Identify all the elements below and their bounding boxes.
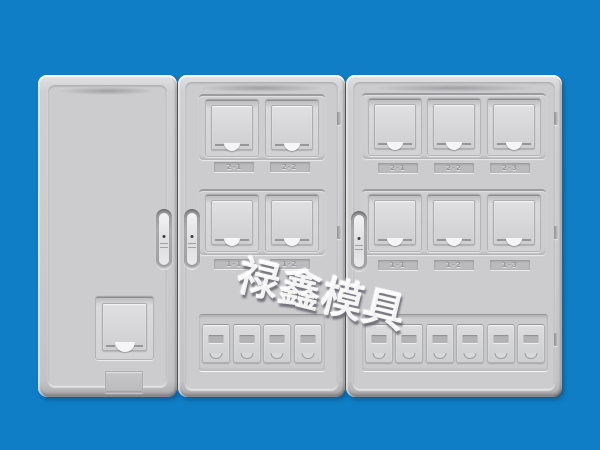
meter-label-plate: 1-3 — [490, 260, 530, 270]
flap-latch-left — [437, 143, 446, 145]
flap-latch-right — [522, 143, 531, 145]
breaker-slot — [493, 335, 508, 343]
hinge-tab — [337, 226, 341, 239]
meter-window — [265, 100, 319, 157]
breaker-latch — [271, 353, 284, 359]
label-row: 1-1 1-2 — [199, 258, 325, 269]
flap-notch — [506, 238, 522, 246]
meter-window-flap — [493, 104, 535, 149]
breaker-window — [202, 324, 230, 363]
flap-latch-left — [378, 239, 387, 241]
left-door-face — [48, 85, 167, 387]
flap-notch — [446, 238, 462, 246]
flap-notch — [224, 143, 240, 151]
meter-label-plate: 2-3 — [490, 163, 530, 173]
flap-latch-right — [403, 239, 412, 241]
card-reader-window — [95, 297, 154, 360]
breaker-latch — [302, 353, 315, 359]
breaker-slot — [270, 335, 285, 343]
meter-window-group-row1 — [362, 189, 546, 255]
meter-window-group-row1 — [199, 189, 325, 255]
flap-latch-right — [403, 143, 412, 145]
meter-box-product-image: 2-1 2-2 1-1 1-2 — [0, 0, 600, 450]
breaker-slot — [463, 335, 478, 343]
meter-window-group-row2 — [362, 93, 546, 159]
flap-latch-left — [275, 239, 284, 241]
breaker-window — [294, 324, 322, 363]
meter-window — [427, 195, 481, 252]
breaker-window — [487, 324, 515, 363]
meter-label-plate: 1-1 — [378, 260, 418, 270]
breaker-slot — [208, 335, 223, 343]
handle-marking — [188, 247, 196, 248]
flap-latch-left — [106, 345, 115, 347]
hinge-tab — [554, 226, 558, 239]
breaker-latch — [209, 353, 222, 359]
breaker-row — [362, 314, 548, 372]
breaker-latch — [464, 353, 477, 359]
flap-latch-right — [522, 239, 531, 241]
breaker-latch — [240, 353, 253, 359]
flap-notch — [115, 342, 135, 352]
flap-latch-left — [275, 144, 284, 146]
flap-latch-left — [378, 143, 387, 145]
breaker-row — [199, 314, 325, 372]
breaker-window — [426, 324, 454, 363]
breaker-window — [395, 324, 423, 363]
label-row: 2-1 2-2 — [199, 161, 325, 172]
meter-window-flap — [374, 200, 416, 245]
meter-window-flap — [211, 200, 253, 245]
lock-dot-icon — [191, 235, 194, 238]
meter-label-plate: 2-1 — [378, 163, 418, 173]
breaker-slot — [432, 335, 447, 343]
breaker-latch — [433, 353, 446, 359]
right-door-panel: 2-1 2-2 2-3 1-1 1-2 1-3 — [346, 75, 562, 397]
handle-recess — [159, 213, 169, 265]
meter-window-flap — [211, 105, 253, 150]
handle-marking — [160, 247, 168, 248]
flap-latch-right — [462, 239, 471, 241]
breaker-window — [517, 324, 545, 363]
flap-latch-left — [437, 239, 446, 241]
flap-latch-right — [300, 239, 309, 241]
flap-notch — [284, 238, 300, 246]
hinge-tab — [554, 112, 558, 125]
meter-window — [487, 99, 541, 156]
meter-window-flap — [374, 104, 416, 149]
breaker-slot — [301, 335, 316, 343]
flap-notch — [506, 142, 522, 150]
meter-window — [205, 100, 259, 157]
meter-window — [368, 195, 422, 252]
left-door-handle — [156, 209, 172, 269]
flap-latch-right — [300, 144, 309, 146]
right-door-handle — [351, 211, 367, 271]
flap-latch-left — [215, 144, 224, 146]
handle-marking — [355, 249, 363, 250]
meter-label-plate: 2-2 — [434, 163, 474, 173]
handle-marking — [160, 243, 168, 244]
meter-window-flap — [493, 200, 535, 245]
meter-window-flap — [271, 105, 313, 150]
meter-window-group-row2 — [199, 94, 325, 160]
label-row: 2-1 2-2 2-3 — [362, 162, 546, 173]
lock-dot-icon — [358, 237, 361, 240]
handle-marking — [355, 245, 363, 246]
breaker-slot — [371, 335, 386, 343]
label-row: 1-1 1-2 1-3 — [362, 259, 546, 270]
meter-window-flap — [271, 200, 313, 245]
nameplate — [105, 371, 143, 393]
meter-window — [487, 195, 541, 252]
meter-label-plate: 2-2 — [270, 162, 310, 172]
flap-latch-left — [497, 239, 506, 241]
flap-latch-right — [240, 239, 249, 241]
meter-window-flap — [433, 200, 475, 245]
left-door-panel — [38, 75, 177, 397]
card-window-flap — [102, 303, 147, 351]
flap-latch-left — [215, 239, 224, 241]
meter-label-plate: 2-1 — [214, 162, 254, 172]
breaker-latch — [372, 353, 385, 359]
breaker-window — [263, 324, 291, 363]
breaker-slot — [524, 335, 539, 343]
flap-notch — [284, 143, 300, 151]
handle-recess — [354, 215, 364, 267]
meter-window — [205, 195, 259, 252]
handle-marking — [188, 243, 196, 244]
breaker-latch — [403, 353, 416, 359]
breaker-slot — [402, 335, 417, 343]
meter-window — [265, 195, 319, 252]
flap-notch — [446, 142, 462, 150]
breaker-latch — [525, 353, 538, 359]
meter-label-plate: 1-2 — [434, 260, 474, 270]
hinge-tab — [337, 112, 341, 125]
meter-window — [368, 99, 422, 156]
breaker-window — [365, 324, 393, 363]
flap-latch-right — [462, 143, 471, 145]
middle-door-handle — [184, 209, 200, 269]
middle-door-panel: 2-1 2-2 1-1 1-2 — [178, 75, 345, 397]
meter-label-plate: 1-2 — [270, 259, 310, 269]
flap-latch-right — [134, 345, 143, 347]
meter-window-flap — [433, 104, 475, 149]
breaker-window — [456, 324, 484, 363]
breaker-latch — [494, 353, 507, 359]
hinge-tab — [554, 333, 558, 346]
handle-recess — [187, 213, 197, 265]
flap-notch — [387, 238, 403, 246]
meter-window — [427, 99, 481, 156]
breaker-window — [233, 324, 261, 363]
lock-dot-icon — [163, 235, 166, 238]
flap-latch-right — [240, 144, 249, 146]
flap-notch — [387, 142, 403, 150]
flap-latch-left — [497, 143, 506, 145]
meter-label-plate: 1-1 — [214, 259, 254, 269]
breaker-slot — [239, 335, 254, 343]
flap-notch — [224, 238, 240, 246]
